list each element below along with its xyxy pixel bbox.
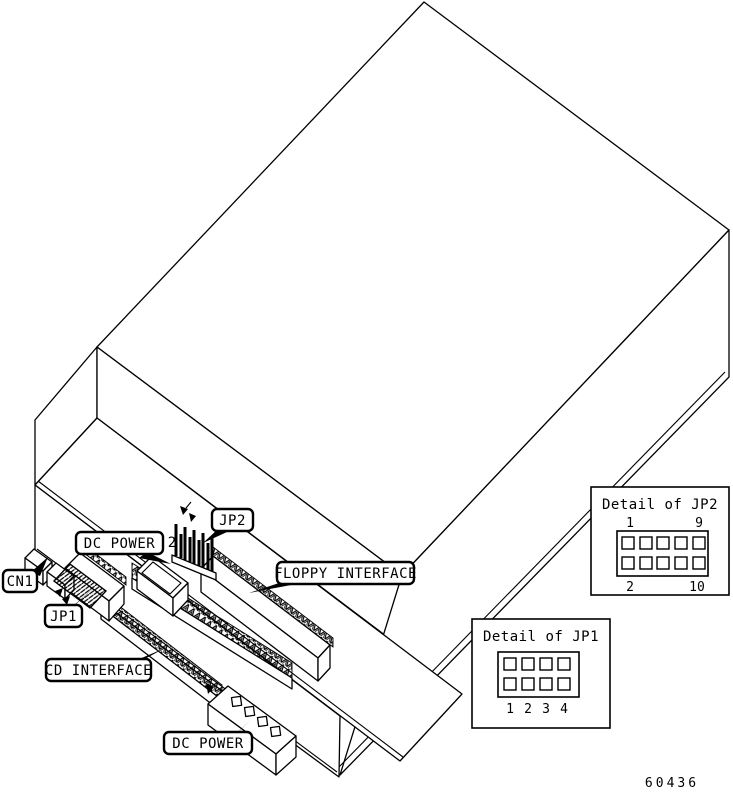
pin-square xyxy=(640,537,652,549)
detail-jp1-pin3-label: 3 xyxy=(542,702,550,717)
callout-text: CN1 xyxy=(7,574,34,590)
pin-square xyxy=(558,678,570,690)
detail-panel-jp1: Detail of JP1 1 2 3 4 xyxy=(472,619,610,728)
pin-square xyxy=(522,658,534,670)
pin-square xyxy=(622,557,634,569)
detail-jp2-title: Detail of JP2 xyxy=(602,497,718,513)
pin xyxy=(270,726,280,736)
pin-square xyxy=(675,537,687,549)
pin-square xyxy=(540,678,552,690)
pin-square xyxy=(504,658,516,670)
pin xyxy=(231,696,241,706)
callout-text: JP1 xyxy=(50,609,77,625)
detail-jp2-pin1-label: 1 xyxy=(626,516,634,531)
pin-square xyxy=(558,658,570,670)
pin xyxy=(257,716,267,726)
pin-square xyxy=(640,557,652,569)
callout-text: JP2 xyxy=(219,513,246,529)
callout-text: FLOPPY INTERFACE xyxy=(274,566,417,582)
drive-connector-diagram: 2 CN1 JP1 DC POWER JP2 FLOPPY INTERFACE … xyxy=(0,0,733,802)
detail-panel-jp2: Detail of JP2 1 9 2 10 xyxy=(591,487,729,595)
figure-number: 60436 xyxy=(645,776,699,791)
callout-text: DC POWER xyxy=(172,736,244,752)
pin-square xyxy=(693,557,705,569)
detail-jp1-pin4-label: 4 xyxy=(560,702,568,717)
detail-jp1-pin2-label: 2 xyxy=(524,702,532,717)
pin-square xyxy=(522,678,534,690)
jp2-pin2-label: 2 xyxy=(168,535,176,551)
detail-jp1-title: Detail of JP1 xyxy=(483,629,599,645)
callout-text: CD INTERFACE xyxy=(45,663,152,679)
detail-jp2-pin9-label: 9 xyxy=(695,516,703,531)
detail-jp2-pin10-label: 10 xyxy=(689,580,705,595)
pin-square xyxy=(675,557,687,569)
pin-square xyxy=(504,678,516,690)
detail-jp1-pin1-label: 1 xyxy=(506,702,514,717)
diagram-page: 2 CN1 JP1 DC POWER JP2 FLOPPY INTERFACE … xyxy=(0,0,733,802)
pin-square xyxy=(657,557,669,569)
pin-square xyxy=(622,537,634,549)
pin-square xyxy=(693,537,705,549)
pin-square xyxy=(540,658,552,670)
pin xyxy=(244,706,254,716)
pin-square xyxy=(657,537,669,549)
detail-jp2-pin2-label: 2 xyxy=(626,580,634,595)
callout-text: DC POWER xyxy=(84,536,156,552)
